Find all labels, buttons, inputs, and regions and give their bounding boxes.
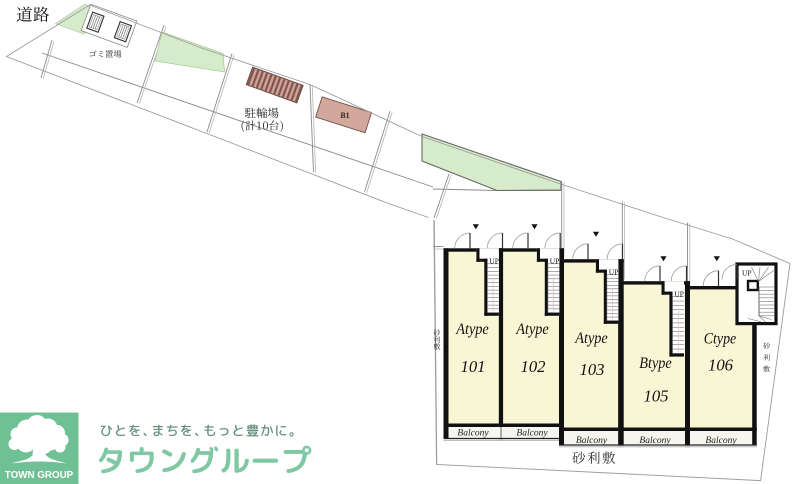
svg-text:UP: UP [674, 289, 684, 298]
svg-text:B1: B1 [340, 111, 349, 120]
svg-text:Atype: Atype [574, 330, 607, 347]
svg-text:102: 102 [521, 357, 546, 376]
svg-text:Balcony: Balcony [639, 436, 671, 446]
svg-text:TOWN GROUP: TOWN GROUP [5, 470, 74, 481]
svg-text:105: 105 [644, 387, 669, 406]
svg-text:Balcony: Balcony [457, 429, 489, 439]
svg-text:106: 106 [708, 356, 733, 375]
svg-text:Btype: Btype [639, 355, 672, 372]
svg-text:Ctype: Ctype [704, 331, 737, 348]
svg-text:Balcony: Balcony [705, 436, 737, 446]
svg-text:Balcony: Balcony [576, 436, 608, 446]
svg-text:UP: UP [550, 257, 560, 266]
svg-text:Atype: Atype [455, 321, 488, 338]
svg-text:103: 103 [580, 360, 605, 379]
svg-text:UP: UP [489, 257, 499, 266]
svg-text:Atype: Atype [515, 321, 548, 338]
svg-text:UP: UP [609, 267, 619, 276]
svg-text:101: 101 [461, 357, 486, 376]
svg-text:Balcony: Balcony [516, 429, 548, 439]
svg-text:UP: UP [742, 269, 752, 278]
